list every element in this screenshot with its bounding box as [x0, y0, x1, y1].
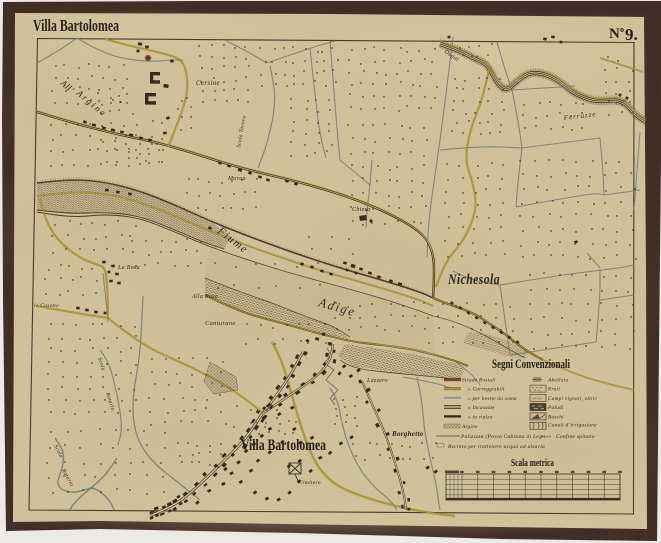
svg-text:Paludi: Paludi [547, 405, 564, 411]
svg-text:Morua: Morua [227, 176, 246, 182]
svg-text:Palizzata (Prova Cabitata di L: Palizzata (Prova Cabitata di Legn. [460, 433, 547, 440]
svg-text:Canali d’irrigazione: Canali d’irrigazione [548, 423, 597, 429]
svg-text:» in rialzo: » in rialzo [468, 414, 493, 420]
svg-text:N: N [609, 26, 620, 42]
svg-text:Scala metrica: Scala metrica [511, 458, 554, 469]
svg-text:Lazzero: Lazzero [366, 378, 388, 384]
svg-text:o: o [620, 25, 624, 34]
svg-text:Prati: Prati [547, 387, 560, 393]
svg-text:++++: ++++ [540, 435, 551, 440]
svg-text:» Incassate: » Incassate [468, 405, 495, 411]
svg-text:Campi vignati, oltivi: Campi vignati, oltivi [548, 396, 597, 402]
svg-text:» Carreggiabili: » Carreggiabili [468, 387, 505, 393]
svg-text:Borghetto: Borghetto [391, 430, 424, 438]
svg-text:Argine: Argine [461, 424, 478, 430]
svg-text:Canturane: Canturane [205, 320, 236, 327]
svg-text:La Rosa: La Rosa [117, 265, 140, 271]
svg-text:Villa Bartolomea: Villa Bartolomea [33, 16, 119, 35]
svg-text:Cersine: Cersine [196, 79, 220, 87]
svg-text:Alla Rosa: Alla Rosa [191, 294, 218, 300]
svg-text:Chiesa: Chiesa [352, 207, 370, 213]
svg-text:Segni Convenzionali: Segni Convenzionali [492, 357, 570, 371]
svg-text:Cimitero: Cimitero [299, 480, 321, 486]
svg-text:Confine spinato: Confine spinato [556, 433, 595, 440]
svg-text:Boschi: Boschi [548, 414, 564, 420]
svg-text:Villa Bartolomea: Villa Bartolomea [241, 437, 326, 454]
svg-text:9.: 9. [625, 25, 638, 44]
svg-text:Abollata: Abollata [547, 378, 568, 384]
svg-text:·v·v·: ·v·v· [531, 397, 543, 401]
svg-text:Strade Postali: Strade Postali [462, 378, 496, 384]
svg-text:Nichesola: Nichesola [447, 272, 500, 288]
svg-text:» per bestie da soma: » per bestie da soma [468, 396, 517, 402]
svg-text:le Casette: le Casette [34, 303, 59, 309]
svg-text:Recinto per trattenere acqua a: Recinto per trattenere acqua ad alzarla [447, 444, 545, 450]
